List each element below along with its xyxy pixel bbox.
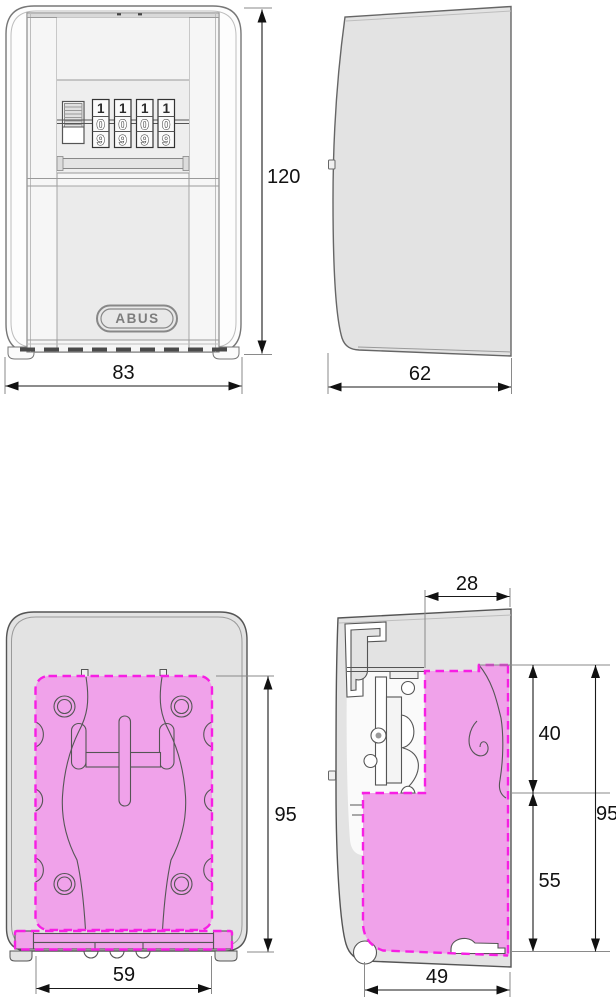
dim-section-lower: 55 bbox=[533, 793, 561, 952]
front-view: 1 0 9 1 0 9 1 0 9 1 0 bbox=[6, 6, 241, 359]
combination-dial: 1 0 9 bbox=[137, 100, 154, 150]
dim-plate-width: 59 bbox=[36, 956, 212, 994]
mechanism-pin bbox=[402, 682, 415, 695]
back-bottom-bumps bbox=[84, 951, 150, 958]
dimension-drawing: 1 0 9 1 0 9 1 0 9 1 0 bbox=[0, 0, 616, 1000]
side-body bbox=[333, 7, 511, 357]
dial-digit: 0 bbox=[162, 117, 170, 134]
combination-dial: 1 0 9 bbox=[158, 100, 175, 150]
section-view bbox=[329, 609, 512, 967]
side-hinge-pin bbox=[329, 160, 336, 169]
dial-digit: 9 bbox=[141, 133, 149, 149]
dim-label-side-depth: 62 bbox=[409, 363, 431, 385]
dim-label-inner-height: 95 bbox=[596, 803, 616, 825]
dim-label-inner-upper: 40 bbox=[539, 723, 561, 745]
back-foot-right bbox=[215, 951, 237, 961]
dim-label-plate-width: 59 bbox=[113, 964, 135, 986]
dial-digit: 0 bbox=[97, 117, 105, 134]
section-hinge-pin bbox=[329, 771, 336, 780]
dial-digit: 9 bbox=[97, 133, 105, 149]
dim-label-plate-height: 95 bbox=[275, 804, 297, 826]
combination-panel-upper bbox=[57, 18, 189, 81]
abus-logo: ABUS bbox=[97, 306, 177, 332]
back-foot-left bbox=[10, 951, 32, 961]
dial-digit: 9 bbox=[162, 133, 170, 149]
dim-front-width: 83 bbox=[5, 357, 242, 394]
side-view bbox=[329, 7, 512, 357]
dim-section-width: 49 bbox=[365, 962, 511, 997]
abus-logo-text: ABUS bbox=[115, 311, 159, 326]
drawing-canvas: 1 0 9 1 0 9 1 0 9 1 0 bbox=[0, 0, 616, 1000]
back-view bbox=[7, 612, 248, 961]
mechanism-pin bbox=[364, 755, 377, 768]
dial-digit: 1 bbox=[119, 101, 127, 116]
top-screw-mark bbox=[138, 13, 142, 15]
latch-plate bbox=[387, 697, 402, 783]
dim-front-height: 120 bbox=[244, 8, 300, 355]
dim-label-depth-top: 28 bbox=[456, 573, 478, 595]
dim-label-inner-width: 49 bbox=[426, 966, 448, 988]
dial-digit: 0 bbox=[119, 117, 127, 134]
front-shelf bbox=[57, 157, 189, 171]
dial-digit: 9 bbox=[119, 133, 127, 149]
interior-space-lower bbox=[363, 793, 509, 956]
bottom-rail bbox=[15, 931, 232, 949]
dial-digit: 1 bbox=[162, 101, 170, 116]
top-screw-mark bbox=[117, 13, 121, 15]
combination-dial: 1 0 9 bbox=[115, 100, 132, 150]
key-hanger-post bbox=[119, 716, 131, 806]
dim-side-depth: 62 bbox=[328, 353, 512, 394]
dial-slider bbox=[63, 102, 85, 144]
dim-label-front-height: 120 bbox=[267, 166, 300, 188]
combination-dial: 1 0 9 bbox=[93, 100, 110, 150]
interior-space-upper bbox=[425, 665, 509, 793]
dim-label-front-width: 83 bbox=[112, 362, 134, 384]
dial-digit: 1 bbox=[97, 101, 105, 116]
dial-digit: 0 bbox=[141, 117, 149, 134]
dial-digit: 1 bbox=[141, 101, 149, 116]
front-top-cap bbox=[27, 13, 219, 18]
dim-section-height: 95 bbox=[511, 665, 616, 952]
dim-label-inner-lower: 55 bbox=[539, 870, 561, 892]
